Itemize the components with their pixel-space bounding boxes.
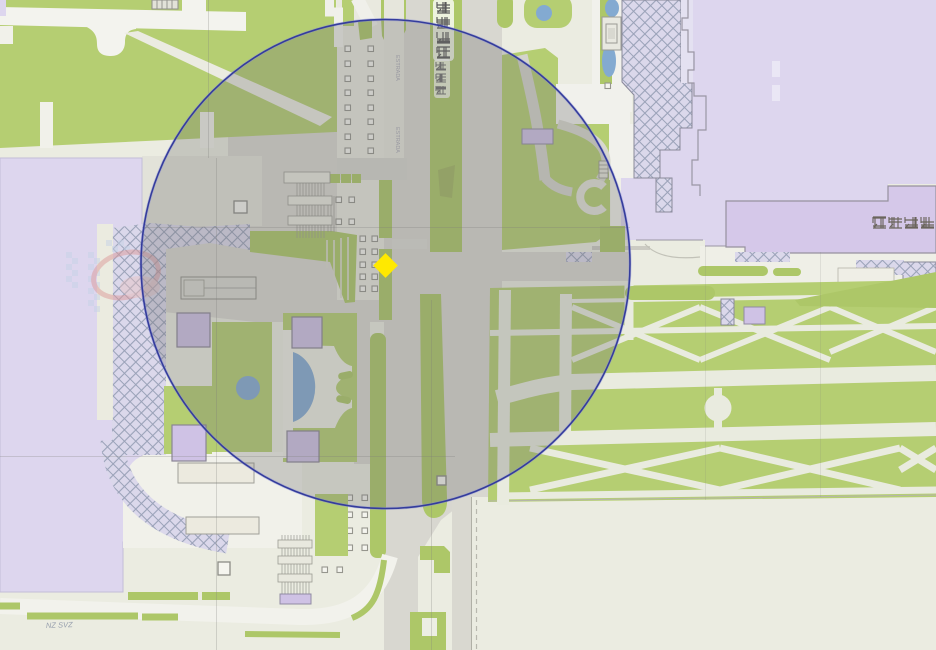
svg-text:NZ SVZ: NZ SVZ [46,620,73,630]
